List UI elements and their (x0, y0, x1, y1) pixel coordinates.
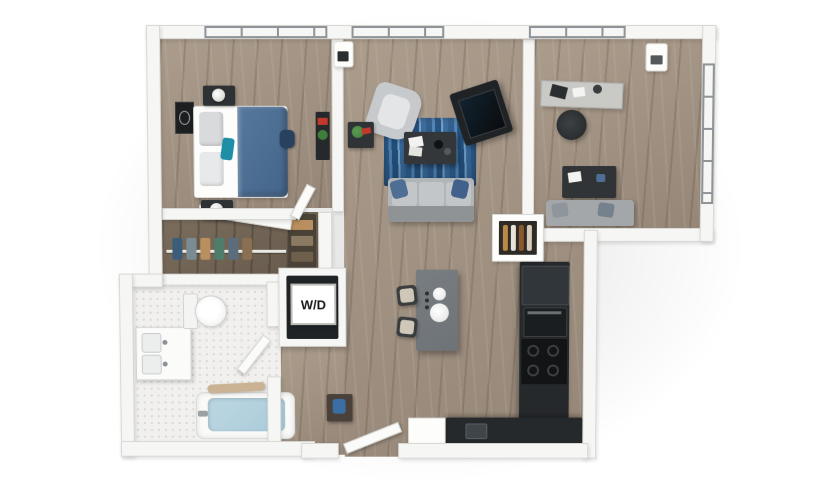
window-den-right (701, 63, 715, 204)
niche-decor (651, 55, 663, 64)
toilet-bowl (195, 295, 227, 327)
hanging-garment (200, 238, 210, 260)
refrigerator (522, 266, 570, 306)
bar-stool-seat (399, 288, 414, 303)
burner (527, 345, 539, 357)
window-bedroom (204, 26, 327, 38)
decor-bowl (434, 140, 443, 149)
washer-dryer-text: W/D (301, 297, 326, 312)
blue-duvet (237, 107, 288, 197)
hanging-garment (214, 238, 224, 260)
magazine (409, 146, 423, 156)
faucet (162, 340, 167, 345)
wall-den-bottom (534, 228, 714, 242)
wall-exterior-bath-bottom (121, 441, 315, 457)
folded-clothes (291, 220, 313, 230)
vanity-sink (141, 333, 161, 353)
wall-exterior-left-lower (119, 274, 135, 457)
window-living (352, 26, 445, 38)
sofa-cushion (419, 182, 444, 206)
island-faucet (425, 298, 429, 302)
red-book (318, 118, 328, 125)
loveseat-pillow (597, 202, 615, 218)
folded-clothes (291, 252, 313, 262)
wine-bottle (527, 225, 532, 251)
den-table-decor (596, 174, 605, 182)
wall-exterior-left-upper (146, 25, 163, 282)
sofa-back (388, 206, 474, 222)
wall-bath-right-lower (267, 376, 281, 443)
burner (547, 365, 559, 377)
console-decor (333, 399, 346, 414)
backpack (280, 130, 295, 148)
table-lamp (212, 89, 225, 102)
desk-papers (572, 87, 585, 98)
wine-bottle (503, 225, 508, 251)
folded-clothes (291, 236, 313, 246)
hanging-garment (186, 238, 196, 260)
wall-entry-right (398, 443, 588, 459)
island-sink (433, 288, 446, 301)
burner (547, 345, 559, 357)
floorplan: W/D (0, 0, 825, 496)
wall-art-print (179, 111, 190, 125)
bed-pillow (199, 112, 223, 146)
hanging-garment (172, 238, 182, 260)
island-faucet (425, 305, 429, 309)
hanging-garment (242, 238, 252, 260)
wall-living-den (522, 39, 535, 228)
island-faucet (425, 292, 429, 296)
loveseat-pillow (551, 202, 569, 218)
wine-bottle (511, 225, 516, 251)
closet-rod (166, 250, 286, 253)
wall-bedroom-bottom (162, 208, 296, 220)
decor-bowl (444, 148, 451, 155)
desk-chair (556, 110, 586, 140)
island-sink (430, 303, 449, 322)
den-table-paper (568, 171, 582, 183)
burner (527, 365, 539, 377)
bar-stool-seat (399, 320, 414, 335)
faucet (163, 362, 168, 367)
window-den-top (529, 26, 626, 38)
wine-bottle (519, 225, 524, 251)
wall-kitchen-right (582, 230, 598, 459)
floorplan-stage: W/D (0, 0, 825, 500)
oven-handle (527, 311, 561, 314)
plant (318, 130, 328, 140)
hanging-garment (228, 238, 238, 260)
washer-dryer-label: W/D (290, 284, 336, 326)
vanity-sink (142, 355, 162, 375)
counter-sink (465, 423, 487, 439)
wall-entry-left (301, 443, 339, 459)
niche-speaker (337, 51, 348, 61)
tub-faucet (198, 411, 208, 417)
desk-lamp (593, 85, 602, 94)
